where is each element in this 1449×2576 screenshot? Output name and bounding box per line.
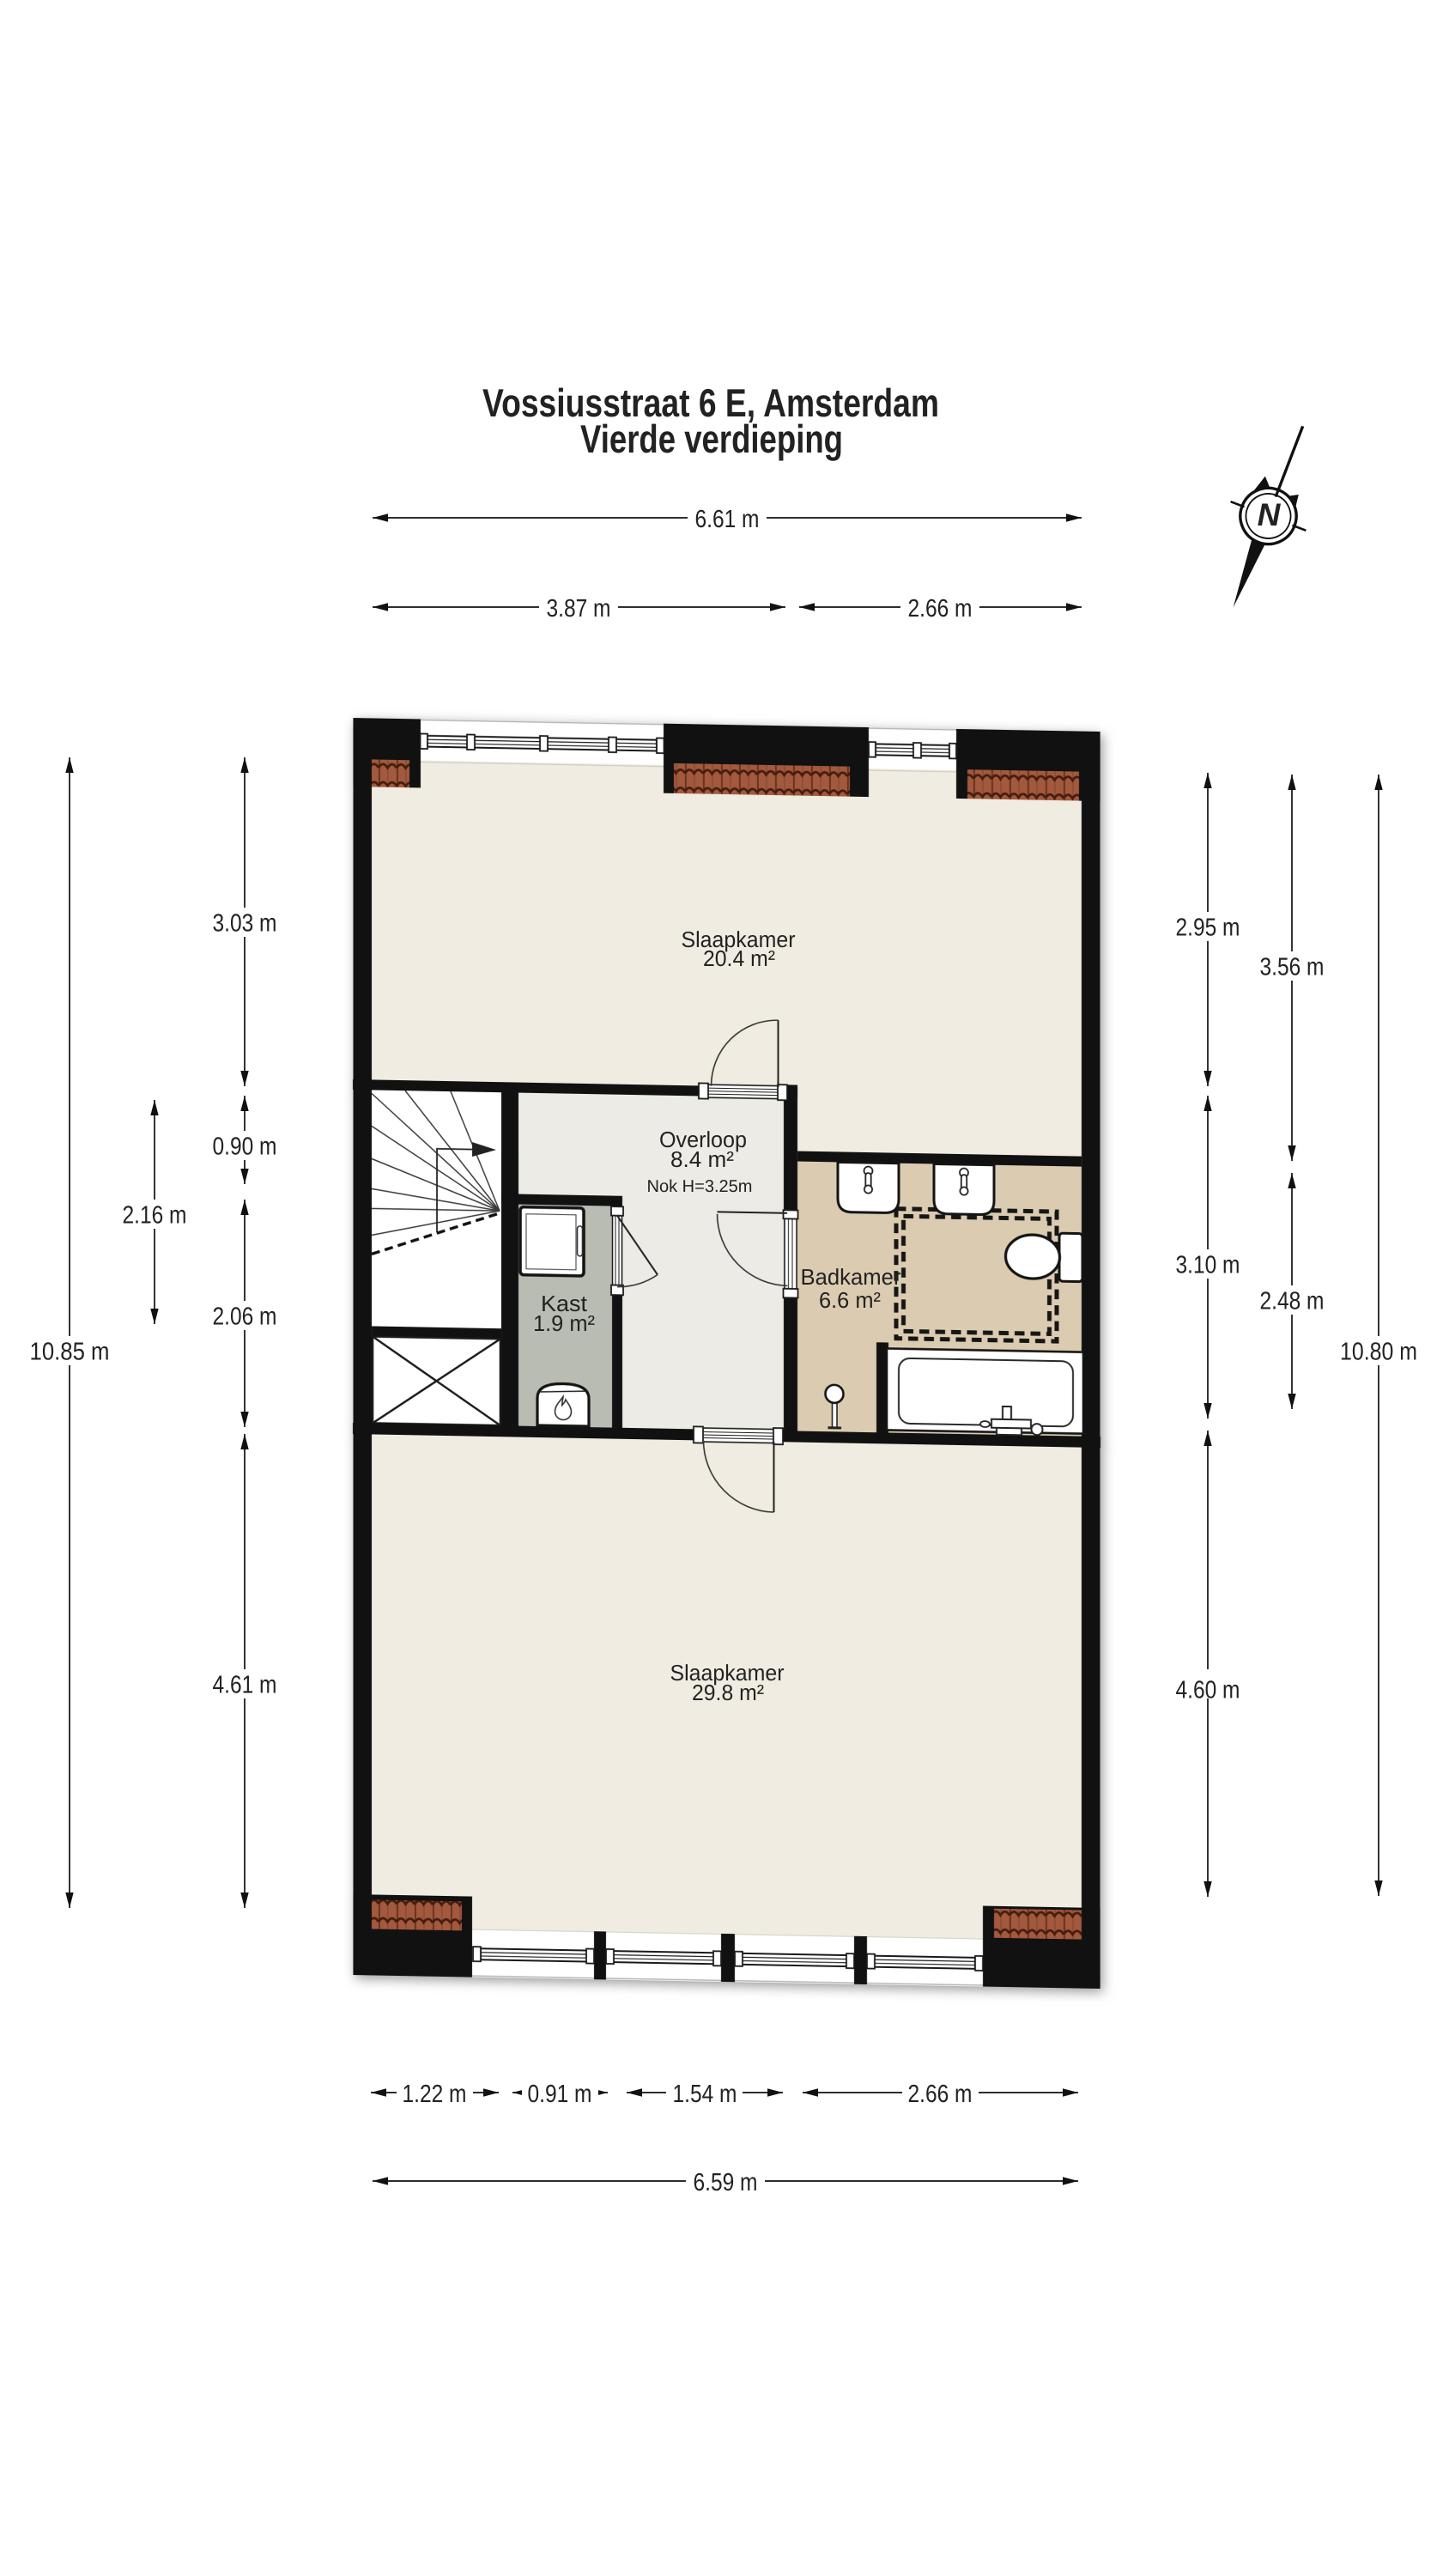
svg-text:1.54 m: 1.54 m <box>673 2081 737 2108</box>
svg-text:10.80 m: 10.80 m <box>1340 1339 1417 1366</box>
svg-text:2.06 m: 2.06 m <box>213 1303 277 1331</box>
svg-text:6.6 m²: 6.6 m² <box>819 1287 881 1313</box>
svg-text:2.95 m: 2.95 m <box>1176 914 1240 942</box>
svg-text:2.48 m: 2.48 m <box>1260 1288 1325 1315</box>
svg-text:3.03 m: 3.03 m <box>213 910 277 938</box>
svg-text:0.90 m: 0.90 m <box>213 1133 277 1161</box>
svg-text:N: N <box>1258 497 1282 532</box>
svg-text:2.16 m: 2.16 m <box>123 1202 187 1230</box>
svg-text:29.8 m²: 29.8 m² <box>692 1680 764 1705</box>
svg-text:2.66 m: 2.66 m <box>908 2081 973 2108</box>
svg-text:0.91 m: 0.91 m <box>528 2081 592 2108</box>
svg-text:Vierde verdieping: Vierde verdieping <box>580 416 843 461</box>
svg-text:20.4 m²: 20.4 m² <box>703 945 775 971</box>
svg-text:3.87 m: 3.87 m <box>547 595 611 623</box>
svg-text:2.66 m: 2.66 m <box>908 595 973 623</box>
svg-text:1.9 m²: 1.9 m² <box>533 1310 595 1336</box>
svg-text:1.22 m: 1.22 m <box>403 2081 467 2108</box>
svg-text:8.4 m²: 8.4 m² <box>670 1146 734 1172</box>
svg-text:10.85 m: 10.85 m <box>30 1339 110 1366</box>
svg-text:3.10 m: 3.10 m <box>1176 1252 1240 1279</box>
svg-text:Nok H=3.25m: Nok H=3.25m <box>647 1177 753 1196</box>
svg-text:Badkamer: Badkamer <box>801 1264 901 1290</box>
svg-text:4.60 m: 4.60 m <box>1176 1677 1240 1704</box>
svg-text:4.61 m: 4.61 m <box>213 1672 277 1699</box>
svg-text:6.61 m: 6.61 m <box>695 506 760 533</box>
svg-text:3.56 m: 3.56 m <box>1260 954 1325 981</box>
svg-text:6.59 m: 6.59 m <box>694 2169 758 2196</box>
